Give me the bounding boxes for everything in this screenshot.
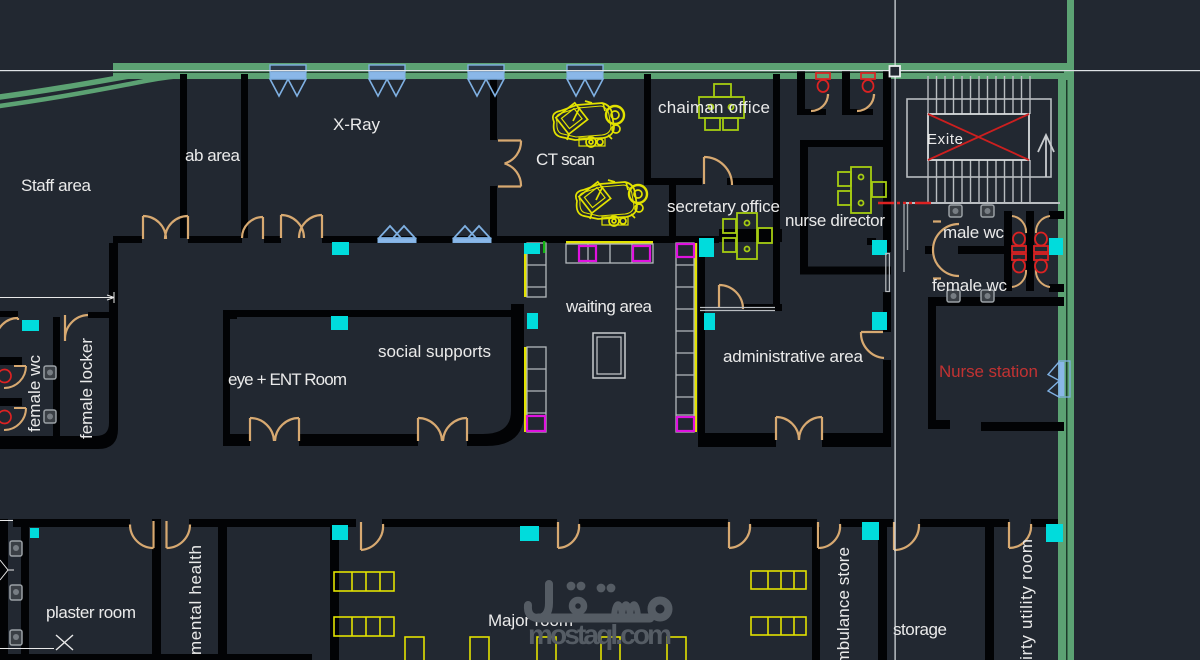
svg-text:mostaql.com: mostaql.com [528,619,672,650]
svg-text:Exite: Exite [927,131,963,148]
svg-text:X-Ray: X-Ray [333,115,381,134]
svg-text:mental health: mental health [186,545,205,655]
svg-text:administrative area: administrative area [723,347,864,366]
svg-text:waiting area: waiting area [565,297,653,316]
svg-text:nurse director: nurse director [785,211,885,230]
svg-text:Nurse station: Nurse station [939,362,1038,381]
svg-text:secretary office: secretary office [667,197,780,216]
svg-text:ab area: ab area [185,146,241,165]
svg-text:eye + ENT Room: eye + ENT Room [228,370,347,389]
svg-text:CT scan: CT scan [536,150,595,169]
svg-text:dirty utility room: dirty utility room [1017,539,1036,660]
svg-text:chaiman office: chaiman office [658,98,770,117]
svg-text:male wc: male wc [943,223,1005,242]
svg-text:Staff area: Staff area [21,176,92,195]
svg-text:social supports: social supports [378,342,491,361]
svg-text:female wc: female wc [25,355,44,433]
svg-text:plaster room: plaster room [46,603,136,622]
svg-text:female locker: female locker [77,338,96,439]
svg-text:storage: storage [893,620,947,639]
svg-text:female wc: female wc [932,276,1008,295]
svg-text:ambulance store: ambulance store [834,547,853,660]
